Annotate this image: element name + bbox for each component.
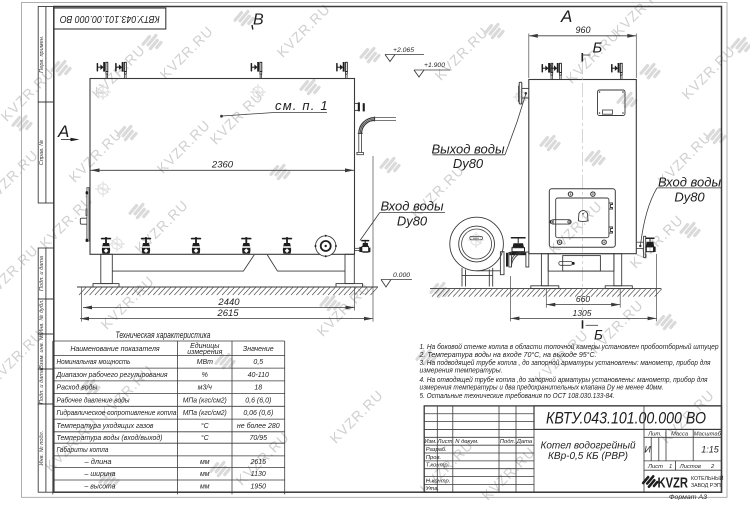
svg-text:KVZR.RU: KVZR.RU [0, 147, 41, 207]
svg-text:KVZR.RU: KVZR.RU [157, 23, 217, 83]
svg-text:KVZR.RU: KVZR.RU [66, 126, 126, 186]
svg-text:KVZR.RU: KVZR.RU [0, 242, 41, 302]
svg-text:70/95: 70/95 [250, 435, 268, 442]
svg-text:Дата: Дата [516, 439, 533, 445]
svg-text:1:15: 1:15 [701, 445, 720, 455]
svg-text:0,06 (0,6): 0,06 (0,6) [243, 410, 273, 417]
svg-text:Инв. № дубл.: Инв. № дубл. [39, 299, 45, 333]
svg-text:– длина: – длина [83, 458, 111, 466]
svg-text:Н.контр.: Н.контр. [426, 478, 451, 484]
svg-text:не более 280: не более 280 [237, 422, 280, 430]
svg-text:1305: 1305 [573, 308, 592, 318]
svg-text:В: В [253, 12, 264, 29]
svg-text:Вход воды: Вход воды [658, 175, 722, 190]
svg-text:МПа (кгс/см2): МПа (кгс/см2) [183, 410, 227, 417]
svg-text:Температура воды (вход/выход): Температура воды (вход/выход) [57, 434, 163, 442]
svg-text:КОТЕЛЬНЫЙ: КОТЕЛЬНЫЙ [691, 474, 724, 482]
svg-text:мм: мм [200, 471, 210, 478]
svg-text:Лит.: Лит. [647, 431, 662, 437]
svg-text:0,6 (6,0): 0,6 (6,0) [245, 397, 271, 404]
svg-text:Инв. № подл.: Инв. № подл. [39, 431, 45, 466]
svg-text:°С: °С [201, 434, 210, 442]
svg-text:Формат А3: Формат А3 [669, 494, 708, 500]
svg-text:Разраб.: Разраб. [426, 447, 447, 453]
svg-text:Значение: Значение [243, 346, 274, 353]
svg-text:KVZR.RU: KVZR.RU [154, 117, 214, 177]
svg-text:Т.контр.: Т.контр. [426, 463, 449, 469]
svg-text:Подп.: Подп. [500, 439, 515, 445]
svg-text:Б: Б [594, 328, 603, 343]
svg-text:мм: мм [200, 459, 210, 466]
svg-text:KVZR.RU: KVZR.RU [207, 88, 267, 148]
svg-text:40-110: 40-110 [248, 372, 269, 379]
svg-text:KVZR.RU: KVZR.RU [546, 198, 606, 258]
svg-text:Изм.: Изм. [424, 439, 436, 445]
svg-text:KVZR.RU: KVZR.RU [679, 43, 739, 103]
svg-text:960: 960 [575, 25, 590, 35]
svg-text:Dу80: Dу80 [397, 214, 428, 229]
svg-text:Пров.: Пров. [426, 455, 441, 461]
svg-text:2440: 2440 [217, 297, 240, 308]
svg-text:1130: 1130 [251, 471, 266, 478]
svg-text:Техническая характеристика: Техническая характеристика [116, 330, 211, 340]
svg-text:Выход воды: Выход воды [431, 142, 505, 157]
svg-text:KVZR.RU: KVZR.RU [432, 24, 492, 84]
svg-text:2615: 2615 [216, 308, 239, 319]
svg-text:0,5: 0,5 [253, 359, 263, 366]
svg-text:измерения температуры.: измерения температуры. [420, 365, 503, 374]
svg-text:Номинальная мощность: Номинальная мощность [57, 359, 131, 366]
svg-text:Рабочее давление воды: Рабочее давление воды [57, 396, 131, 404]
svg-text:измерения: измерения [187, 349, 222, 356]
svg-text:Габариты котла: Габариты котла [57, 446, 109, 454]
svg-text:КВТУ.043.101.00.000 ВО: КВТУ.043.101.00.000 ВО [546, 409, 706, 428]
svg-text:МПа (кгс/см2): МПа (кгс/см2) [183, 397, 227, 404]
svg-text:Лист: Лист [647, 464, 663, 470]
svg-text:А: А [57, 122, 69, 141]
svg-text:1: 1 [669, 464, 672, 470]
svg-text:KVZR.RU: KVZR.RU [314, 280, 374, 340]
svg-text:Гидравлическое сопротивление к: Гидравлическое сопротивление котла [57, 409, 177, 417]
svg-text:Утв.: Утв. [425, 486, 439, 492]
svg-text:18: 18 [254, 385, 262, 392]
svg-text:0.000: 0.000 [393, 272, 410, 279]
svg-text:– ширина: – ширина [84, 471, 116, 478]
svg-text:Б: Б [593, 40, 603, 57]
svg-text:KVZR.RU: KVZR.RU [274, 1, 334, 61]
svg-text:Масштаб: Масштаб [694, 431, 722, 437]
svg-text:KVZR: KVZR [658, 476, 689, 492]
svg-text:KVZR.RU: KVZR.RU [0, 65, 57, 125]
svg-text:Наименование показателя: Наименование показателя [70, 346, 160, 353]
svg-text:Расход воды: Расход воды [57, 384, 99, 392]
svg-text:Справ. №: Справ. № [39, 140, 45, 165]
svg-text:%: % [202, 372, 208, 379]
svg-text:Подп. и дата: Подп. и дата [39, 369, 45, 404]
svg-text:Лист: Лист [437, 439, 453, 445]
svg-text:КВр-0,5 КБ (РВР): КВр-0,5 КБ (РВР) [548, 451, 628, 462]
svg-text:Взам. инв. №: Взам. инв. № [39, 334, 45, 369]
svg-text:Вход воды: Вход воды [380, 199, 444, 214]
svg-text:Масса: Масса [671, 431, 689, 437]
svg-text:2360: 2360 [211, 160, 234, 171]
svg-text:2: 2 [710, 464, 715, 470]
svg-text:2615: 2615 [250, 459, 267, 466]
svg-text:Диапазон рабочего регулировани: Диапазон рабочего регулирования [56, 371, 168, 379]
svg-text:N докум.: N докум. [455, 439, 478, 445]
svg-text:+1.900: +1.900 [424, 62, 445, 69]
svg-text:1950: 1950 [251, 484, 267, 491]
svg-text:660: 660 [576, 294, 590, 304]
svg-text:МВт: МВт [197, 359, 214, 366]
svg-text:KVZR.RU: KVZR.RU [98, 273, 158, 333]
svg-text:см. п. 1: см. п. 1 [275, 98, 329, 113]
svg-text:Температура уходящих газов: Температура уходящих газов [57, 422, 154, 430]
svg-text:ЗАВОД РЭП: ЗАВОД РЭП [691, 483, 721, 489]
svg-text:Dу80: Dу80 [453, 156, 484, 171]
svg-text:А: А [560, 7, 572, 26]
svg-text:Перв. примен.: Перв. примен. [39, 36, 45, 73]
svg-text:Подп. и дата: Подп. и дата [39, 256, 45, 291]
svg-text:м3/ч: м3/ч [198, 385, 213, 392]
svg-text:Листов: Листов [679, 464, 701, 470]
svg-text:°С: °С [201, 422, 210, 430]
svg-text:Dу80: Dу80 [674, 190, 705, 205]
svg-text:КВТУ.043.101.00.000 ВО: КВТУ.043.101.00.000 ВО [59, 13, 159, 24]
svg-text:И: И [644, 445, 651, 455]
svg-text:KVZR.RU: KVZR.RU [327, 387, 387, 447]
svg-text:+2.065: +2.065 [393, 47, 414, 54]
svg-text:– высота: – высота [84, 484, 116, 491]
svg-text:мм: мм [200, 484, 210, 491]
svg-text:5. Остальные технические треб: 5. Остальные технические требования по О… [420, 391, 615, 400]
